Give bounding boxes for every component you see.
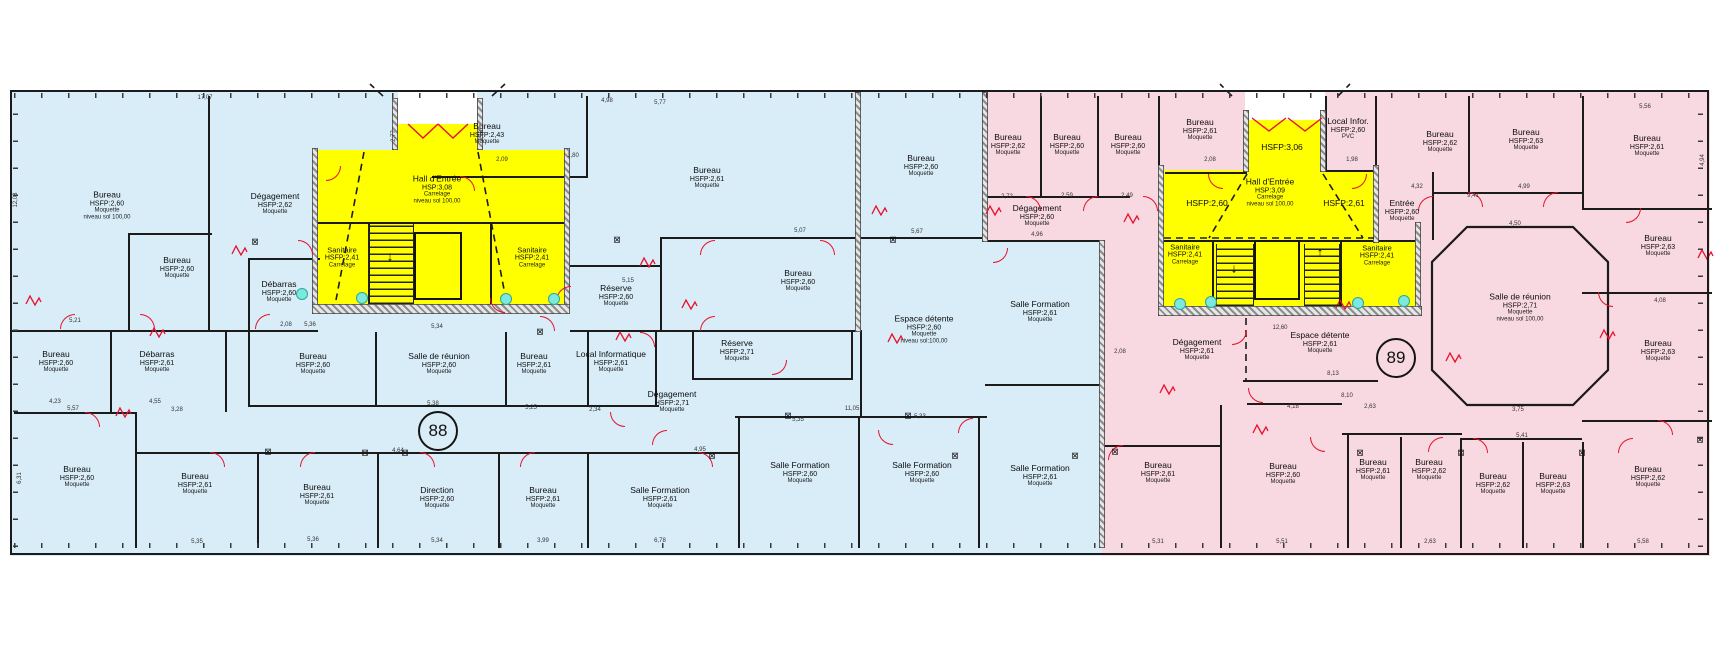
room-label-line: HSFP:2,60 xyxy=(1327,126,1369,134)
room-label-line: Bureau xyxy=(526,486,560,496)
room-label-line: Carrelage xyxy=(1360,261,1394,268)
dimension-text: 5,34 xyxy=(431,324,443,330)
room-label-line: Bureau xyxy=(781,269,815,279)
dimension-text: 8,10 xyxy=(1341,393,1353,399)
wall-junction-icon: ⊠ xyxy=(951,452,959,461)
room-label-line: HSFP:2,60 xyxy=(1186,199,1228,209)
room-label: Salle FormationHSFP:2,61Moquette xyxy=(1010,464,1070,488)
room-label: Salle de réunionHSFP:2,71Moquetteniveau … xyxy=(1489,293,1550,324)
room-label-line: Bureau xyxy=(904,154,938,164)
wall-junction-icon: ⊠ xyxy=(264,448,272,457)
room-label-line: Moquette xyxy=(1476,489,1510,496)
room-label-line: Bureau xyxy=(296,352,330,362)
dimension-text: 5,57 xyxy=(67,406,79,412)
room-label-line: HSFP:2,71 xyxy=(720,348,754,356)
wall xyxy=(375,332,377,407)
dimension-text: 2,34 xyxy=(589,407,601,413)
room-label-line: Moquette xyxy=(39,367,73,374)
hatched-wall xyxy=(855,92,861,332)
room-label-line: HSP:3,09 xyxy=(1246,187,1294,195)
wall xyxy=(248,258,250,332)
wall-junction-icon: ⊠ xyxy=(536,328,544,337)
sanitary-fixture-icon xyxy=(500,293,512,305)
room-label-line: Moquette xyxy=(1010,317,1070,324)
room-label: BureauHSFP:2,63Moquette xyxy=(1641,234,1675,258)
dimension-text: 5,35 xyxy=(792,417,804,423)
room-label-line: HSP:3,08 xyxy=(413,184,461,192)
facade-windows-top xyxy=(14,93,1702,98)
room-label-line: Moquette xyxy=(1266,479,1300,486)
dimension-text: 5,33 xyxy=(914,414,926,420)
room-label-line: Moquette xyxy=(408,369,469,376)
dimension-text: 5,67 xyxy=(911,229,923,235)
sanitary-fixture-icon xyxy=(548,293,560,305)
room-label-line: HSFP:2,63 xyxy=(1641,243,1675,251)
wall xyxy=(135,452,740,454)
room-label-line: HSFP:2,62 xyxy=(1423,139,1457,147)
room-label-line: Bureau xyxy=(1141,461,1175,471)
room-label: BureauHSFP:2,61Moquette xyxy=(690,166,724,190)
room-label-line: HSFP:2,60 xyxy=(1111,142,1145,150)
room-label: RéserveHSFP:2,71Moquette xyxy=(720,339,754,363)
wall-junction-icon: ⊠ xyxy=(1578,449,1586,458)
room-label: BureauHSFP:2,60Moquette xyxy=(1111,133,1145,157)
sanitary-fixture-icon xyxy=(356,292,368,304)
room-label-line: Moquette xyxy=(1050,150,1084,157)
dimension-text: 2,08 xyxy=(1114,349,1126,355)
stair-direction-arrow: ↓ xyxy=(387,250,394,263)
room-label: BureauHSFP:2,60Moquette xyxy=(296,352,330,376)
wall xyxy=(1522,442,1524,548)
room-label-line: HSFP:2,60 xyxy=(160,265,194,273)
room-label-line: Direction xyxy=(420,486,454,496)
room-label: Salle FormationHSFP:2,60Moquette xyxy=(770,461,830,485)
wall-junction-icon: ⊠ xyxy=(1457,449,1465,458)
room-label-line: HSFP:2,61 xyxy=(1290,340,1349,348)
room-label-line: Moquette xyxy=(470,139,504,146)
dimension-text: 5,56 xyxy=(1639,104,1651,110)
wall xyxy=(498,452,500,548)
hatched-wall xyxy=(312,148,318,310)
wall xyxy=(1375,96,1377,172)
room-label-line: HSFP:2,61 xyxy=(1356,467,1390,475)
room-label-line: HSFP:2,61 xyxy=(1323,199,1365,209)
hatched-wall xyxy=(982,92,988,242)
room-label-line: niveau sol 100,00 xyxy=(1246,202,1294,209)
room-label-line: Carrelage xyxy=(1168,260,1202,267)
room-label-line: HSFP:2,63 xyxy=(1641,348,1675,356)
room-label-line: HSFP:3,06 xyxy=(1261,143,1303,153)
room-label-line: HSFP:2,61 xyxy=(300,492,334,500)
vestibule-left xyxy=(398,124,477,152)
room-label-line: Bureau xyxy=(1630,134,1664,144)
room-label-line: Moquette xyxy=(1173,355,1222,362)
room-label: BureauHSFP:2,60Moquette xyxy=(160,256,194,280)
room-label: RéserveHSFP:2,60Moquette xyxy=(599,284,633,308)
wall xyxy=(225,330,227,412)
room-label-line: Sanitaire xyxy=(325,247,359,255)
room-label-line: HSFP:2,61 xyxy=(630,495,690,503)
elevator-shaft xyxy=(414,232,462,300)
room-label: BureauHSFP:2,63Moquette xyxy=(1641,339,1675,363)
room-label-line: HSFP:2,61 xyxy=(576,359,646,367)
dimension-text: 5,15 xyxy=(622,278,634,284)
room-label: BureauHSFP:2,61Moquette xyxy=(1141,461,1175,485)
room-label: BureauHSFP:2,60Moquette xyxy=(39,350,73,374)
room-label-line: HSFP:2,60 xyxy=(262,289,297,297)
wall-junction-icon: ⊠ xyxy=(889,236,897,245)
wall xyxy=(128,233,212,235)
room-label-line: HSFP:2,61 xyxy=(178,481,212,489)
room-label-line: Moquette xyxy=(781,286,815,293)
room-label: BureauHSFP:2,62Moquette xyxy=(1476,472,1510,496)
hatched-wall xyxy=(1243,110,1249,172)
wall xyxy=(257,452,259,548)
wall xyxy=(14,412,137,414)
room-label-line: Débarras xyxy=(140,350,175,360)
room-label: BureauHSFP:2,61Moquette xyxy=(517,352,551,376)
level-marker-label: 88 xyxy=(429,421,448,441)
room-label: Salle FormationHSFP:2,61Moquette xyxy=(630,486,690,510)
room-label: Espace détenteHSFP:2,61Moquette xyxy=(1290,331,1349,355)
room-label-line: Moquette xyxy=(894,332,953,339)
room-label: BureauHSFP:2,63Moquette xyxy=(1509,128,1543,152)
level-marker-circle: 88 xyxy=(418,411,458,451)
room-label-line: Débarras xyxy=(262,280,297,290)
sanitary-fixture-icon xyxy=(1205,296,1217,308)
room-label-line: Moquette xyxy=(178,489,212,496)
room-label-line: Bureau xyxy=(300,483,334,493)
room-label-line: HSFP:2,60 xyxy=(892,470,952,478)
room-label-line: Bureau xyxy=(1356,458,1390,468)
elevator-shaft xyxy=(1254,240,1300,300)
hatched-wall xyxy=(1320,110,1326,172)
room-label-line: Dégagement xyxy=(648,390,697,400)
dimension-text: 3,28 xyxy=(171,407,183,413)
room-label-line: HSFP:2,60 xyxy=(296,361,330,369)
room-label-line: Moquette xyxy=(599,301,633,308)
room-label-line: Moquette xyxy=(1356,475,1390,482)
dimension-text: 5,36 xyxy=(304,322,316,328)
wall xyxy=(1582,208,1712,210)
room-label-line: Espace détente xyxy=(894,315,953,325)
wall xyxy=(1582,442,1584,548)
room-label-line: HSFP:2,60 xyxy=(599,293,633,301)
staircase xyxy=(368,224,414,304)
room-label-line: HSFP:2,41 xyxy=(325,255,359,263)
room-label-line: Moquette xyxy=(140,367,175,374)
room-label-line: Réserve xyxy=(599,284,633,294)
dimension-text: 4,32 xyxy=(1411,184,1423,190)
wall xyxy=(318,222,570,224)
room-label-line: Local Infor. xyxy=(1327,117,1369,127)
room-label: BureauHSFP:2,63Moquette xyxy=(1536,472,1570,496)
room-label-line: HSFP:2,60 xyxy=(1050,142,1084,150)
room-label: HSFP:2,61 xyxy=(1323,199,1365,209)
room-label: Salle de réunionHSFP:2,60Moquette xyxy=(408,352,469,376)
room-label-line: Salle de réunion xyxy=(1489,293,1550,303)
room-label-line: Moquette xyxy=(517,369,551,376)
wall xyxy=(1582,420,1712,422)
dimension-text: 5,38 xyxy=(427,401,439,407)
wall xyxy=(1340,240,1342,306)
room-label-line: Entrée xyxy=(1385,199,1419,209)
level-marker-label: 89 xyxy=(1387,348,1406,368)
room-label-line: Bureau xyxy=(178,472,212,482)
wall xyxy=(735,416,987,418)
room-label-line: HSFP:2,60 xyxy=(770,470,830,478)
room-label-line: Moquette xyxy=(420,503,454,510)
room-label-line: Moquette xyxy=(300,500,334,507)
room-label: DégagementHSFP:2,62Moquette xyxy=(251,192,300,216)
wall xyxy=(10,330,318,332)
room-label-line: Bureau xyxy=(1412,458,1446,468)
room-label: BureauHSFP:2,60Moquette xyxy=(1050,133,1084,157)
room-label: DébarrasHSFP:2,60Moquette xyxy=(262,280,297,304)
room-label: Salle FormationHSFP:2,61Moquette xyxy=(1010,300,1070,324)
dimension-text: 3,75 xyxy=(1512,407,1524,413)
room-label-line: Moquette xyxy=(770,478,830,485)
room-label-line: HSFP:2,60 xyxy=(39,359,73,367)
room-label-line: Moquette xyxy=(1412,475,1446,482)
dimension-text: 2,08 xyxy=(1204,157,1216,163)
room-label-line: Moquette xyxy=(904,171,938,178)
room-label-line: Moquette xyxy=(160,273,194,280)
dimension-text: 4,23 xyxy=(49,399,61,405)
entrance-notch-left xyxy=(398,86,477,124)
room-label-line: Bureau xyxy=(1183,118,1217,128)
wall xyxy=(1325,170,1377,172)
hatched-wall xyxy=(1158,165,1164,310)
dimension-text: 4,98 xyxy=(601,98,613,104)
room-label-line: Moquette xyxy=(1013,221,1062,228)
sanitary-fixture-icon xyxy=(1352,297,1364,309)
room-label: BureauHSFP:2,60Moquette xyxy=(904,154,938,178)
wall xyxy=(660,237,987,239)
room-label-line: Moquette xyxy=(576,367,646,374)
room-label-line: HSFP:2,60 xyxy=(420,495,454,503)
wall xyxy=(1347,433,1349,548)
room-label: Local Infor.HSFP:2,60PVC xyxy=(1327,117,1369,141)
wall-junction-icon: ⊠ xyxy=(251,238,259,247)
wall xyxy=(858,416,860,548)
dimension-text: 1,80 xyxy=(567,153,579,159)
room-label-line: Sanitaire xyxy=(1168,244,1202,252)
room-label-line: Bureau xyxy=(1266,462,1300,472)
dimension-text: 2,08 xyxy=(280,322,292,328)
wall xyxy=(1342,433,1462,435)
room-label-line: HSFP:2,71 xyxy=(648,399,697,407)
room-label: SanitaireHSFP:2,41Carrelage xyxy=(1360,245,1394,268)
room-label-line: Moquette xyxy=(251,209,300,216)
room-label-line: HSFP:2,63 xyxy=(1536,481,1570,489)
room-label: HSFP:2,60 xyxy=(1186,199,1228,209)
room-label-line: Salle Formation xyxy=(630,486,690,496)
dimension-text: 8,13 xyxy=(1327,371,1339,377)
wall-junction-icon: ⊠ xyxy=(361,449,369,458)
room-label-line: Hall d'Entrée xyxy=(413,175,461,185)
hatched-wall xyxy=(1099,240,1105,548)
room-label-line: Bureau xyxy=(991,133,1025,143)
room-label: BureauHSFP:2,61Moquette xyxy=(1630,134,1664,158)
room-label-line: HSFP:2,60 xyxy=(781,278,815,286)
room-label-line: HSFP:2,62 xyxy=(1476,481,1510,489)
room-label-line: Bureau xyxy=(1641,339,1675,349)
room-label-line: HSFP:2,60 xyxy=(83,200,130,208)
room-label: BureauHSFP:2,61Moquette xyxy=(178,472,212,496)
dimension-text: 2,76 xyxy=(479,130,485,142)
room-label: Hall d'EntréeHSP:3,08Carrelageniveau sol… xyxy=(413,175,461,206)
floor-plan-canvas: ↓↓↑⊠⊠⊠⊠⊠⊠⊠⊠⊠⊠⊠⊠⊠⊠⊠⊠⊠ BureauHSFP:2,60Moqu… xyxy=(0,0,1721,652)
dimension-text: 4,95 xyxy=(694,447,706,453)
room-label: Salle FormationHSFP:2,60Moquette xyxy=(892,461,952,485)
room-label-line: niveau sol 100,00 xyxy=(413,199,461,206)
room-label-line: niveau sol 100,00 xyxy=(83,215,130,222)
wall xyxy=(1243,380,1378,382)
room-label-line: Moquette xyxy=(1385,216,1419,223)
room-label-line: Carrelage xyxy=(515,263,549,270)
room-label-line: Bureau xyxy=(39,350,73,360)
room-label-line: Moquette xyxy=(1290,348,1349,355)
room-label: BureauHSFP:2,61Moquette xyxy=(300,483,334,507)
room-label-line: Moquette xyxy=(60,482,94,489)
room-label-line: HSFP:2,61 xyxy=(517,361,551,369)
wall-junction-icon: ⊠ xyxy=(1111,448,1119,457)
room-label: DégagementHSFP:2,60Moquette xyxy=(1013,204,1062,228)
room-label-line: Moquette xyxy=(262,297,297,304)
room-label-line: Salle Formation xyxy=(770,461,830,471)
wall xyxy=(978,416,980,548)
wall xyxy=(851,330,853,380)
room-label-line: HSFP:2,61 xyxy=(1141,470,1175,478)
room-label-line: Moquette xyxy=(1641,251,1675,258)
dimension-text: 5,25 xyxy=(525,405,537,411)
dimension-text: 9,41 xyxy=(1467,193,1479,199)
room-label-line: niveau sol 100,00 xyxy=(1489,317,1550,324)
room-label-line: Bureau xyxy=(1509,128,1543,138)
room-label-line: Moquette xyxy=(1509,145,1543,152)
wall xyxy=(505,332,507,407)
room-label-line: HSFP:2,61 xyxy=(1183,127,1217,135)
wall xyxy=(692,378,853,380)
wall xyxy=(1097,96,1099,196)
entrance-notch-right xyxy=(1245,86,1325,120)
room-label: SanitaireHSFP:2,41Carrelage xyxy=(1168,244,1202,267)
wall-junction-icon: ⊠ xyxy=(708,452,716,461)
room-label-line: Bureau xyxy=(1111,133,1145,143)
wall xyxy=(570,265,662,267)
room-label-line: Moquette xyxy=(1183,135,1217,142)
room-label-line: Moquette xyxy=(1111,150,1145,157)
room-label: Espace détenteHSFP:2,60Moquetteniveau so… xyxy=(894,315,953,346)
facade-windows-left xyxy=(13,94,18,547)
wall xyxy=(110,330,112,412)
room-label-line: HSFP:2,61 xyxy=(1010,473,1070,481)
room-label-line: HSFP:2,41 xyxy=(515,255,549,263)
wall xyxy=(586,96,588,178)
room-label-line: Bureau xyxy=(690,166,724,176)
stair-direction-arrow: ↓ xyxy=(1231,262,1238,275)
room-label: BureauHSFP:2,62Moquette xyxy=(1423,130,1457,154)
hatched-wall xyxy=(1373,165,1379,243)
wall-junction-icon: ⊠ xyxy=(784,412,792,421)
room-label-line: HSFP:2,60 xyxy=(60,474,94,482)
wall xyxy=(692,330,694,380)
room-label: SanitaireHSFP:2,41Carrelage xyxy=(515,247,549,270)
dimension-text: 4,64 xyxy=(392,448,404,454)
room-label-line: HSFP:2,60 xyxy=(904,163,938,171)
room-label-line: Moquette xyxy=(296,369,330,376)
room-label-line: Bureau xyxy=(517,352,551,362)
dimension-text: 2,63 xyxy=(1364,404,1376,410)
room-label-line: HSFP:2,60 xyxy=(1385,208,1419,216)
room-label: EntréeHSFP:2,60Moquette xyxy=(1385,199,1419,223)
room-label-line: HSFP:2,43 xyxy=(470,131,504,139)
room-label: BureauHSFP:2,62Moquette xyxy=(1412,458,1446,482)
wall xyxy=(1468,96,1470,194)
room-label-line: Hall d'Entrée xyxy=(1246,178,1294,188)
room-label-line: Bureau xyxy=(470,122,504,132)
dimension-text: 1,98 xyxy=(1346,157,1358,163)
sanitary-fixture-icon xyxy=(296,288,308,300)
wall xyxy=(135,412,137,548)
wall xyxy=(738,416,740,548)
room-label-line: HSFP:2,61 xyxy=(1630,143,1664,151)
room-label-line: Bureau xyxy=(83,191,130,201)
wall xyxy=(988,240,1102,242)
dimension-text: 2,49 xyxy=(1121,193,1133,199)
dimension-text: 2,77 xyxy=(391,130,397,142)
wall xyxy=(1220,405,1222,548)
wall xyxy=(1165,172,1247,174)
room-label-line: Moquette xyxy=(526,503,560,510)
room-label-line: Réserve xyxy=(720,339,754,349)
dimension-text: 4,50 xyxy=(1509,221,1521,227)
room-label-line: Carrelage xyxy=(1246,195,1294,202)
room-label-line: Carrelage xyxy=(325,263,359,270)
room-label: BureauHSFP:2,62Moquette xyxy=(1631,465,1665,489)
room-label-line: Moquette xyxy=(83,208,130,215)
dimension-text: 2,09 xyxy=(496,157,508,163)
room-label: Hall d'EntréeHSP:3,09Carrelageniveau sol… xyxy=(1246,178,1294,209)
wall-junction-icon: ⊠ xyxy=(904,412,912,421)
dimension-text: 4,18 xyxy=(1287,404,1299,410)
room-label-line: Dégagement xyxy=(1173,338,1222,348)
room-label: BureauHSFP:2,60Moquette xyxy=(1266,462,1300,486)
wall xyxy=(490,222,492,306)
room-label-line: Sanitaire xyxy=(515,247,549,255)
room-label-line: HSFP:2,61 xyxy=(1173,347,1222,355)
room-label: BureauHSFP:2,62Moquette xyxy=(991,133,1025,157)
room-label-line: Moquette xyxy=(1423,147,1457,154)
room-label-line: Carrelage xyxy=(413,192,461,199)
room-label-line: Moquette xyxy=(1631,482,1665,489)
dimension-text: 12,60 xyxy=(1272,325,1287,331)
room-label-line: Bureau xyxy=(1050,133,1084,143)
room-label-line: Bureau xyxy=(1536,472,1570,482)
wall-junction-icon: ⊠ xyxy=(1071,452,1079,461)
room-label-line: HSFP:2,41 xyxy=(1360,253,1394,261)
room-label: BureauHSFP:2,60Moquette xyxy=(781,269,815,293)
room-label-line: HSFP:2,62 xyxy=(991,142,1025,150)
wall xyxy=(248,258,320,260)
room-label-line: HSFP:2,62 xyxy=(251,201,300,209)
facade-windows-bottom xyxy=(14,543,1702,548)
room-label-line: Moquette xyxy=(1536,489,1570,496)
room-label-line: Moquette xyxy=(720,356,754,363)
wall xyxy=(248,332,250,407)
wall xyxy=(1400,437,1402,548)
